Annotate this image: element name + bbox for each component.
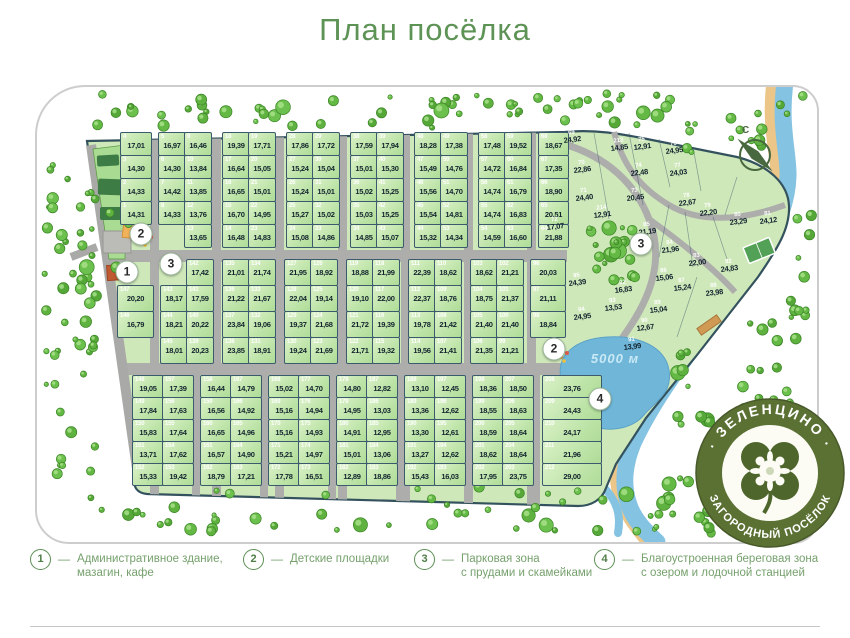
legend-number-1: 1 bbox=[30, 549, 51, 570]
page-title: План посёлка bbox=[0, 12, 850, 48]
legend: 1 — Административное здание,мазагин, каф… bbox=[0, 549, 850, 604]
legend-item-1: 1 — Административное здание,мазагин, каф… bbox=[30, 549, 223, 580]
legend-number-4: 4 bbox=[594, 549, 615, 570]
legend-item-4: 4 — Благоустроенная береговая зонас озер… bbox=[594, 549, 818, 580]
legend-text-2: Детские площадки bbox=[290, 549, 389, 566]
map-marker-4: 4 bbox=[589, 388, 612, 411]
logo-badge: · ЗЕЛЕНЦИНО · ЗАГОРОДНЫЙ ПОСЁЛОК bbox=[693, 396, 847, 550]
legend-item-2: 2 — Детские площадки bbox=[243, 549, 389, 570]
map-marker-1: 1 bbox=[116, 261, 139, 284]
legend-dash: — bbox=[271, 549, 283, 570]
page-footer-line bbox=[30, 626, 820, 627]
map-marker-3: 3 bbox=[160, 253, 183, 276]
map-marker-2: 2 bbox=[130, 223, 153, 246]
settlement-plan-page: План посёлка bbox=[0, 0, 850, 638]
legend-number-2: 2 bbox=[243, 549, 264, 570]
legend-dash: — bbox=[58, 549, 70, 570]
legend-text-3: Парковая зонас прудами и скамейками bbox=[461, 549, 592, 580]
legend-dash: — bbox=[442, 549, 454, 570]
map-marker-3: 3 bbox=[630, 233, 653, 256]
legend-number-3: 3 bbox=[414, 549, 435, 570]
legend-item-3: 3 — Парковая зонас прудами и скамейками bbox=[414, 549, 592, 580]
map-marker-2: 2 bbox=[543, 338, 566, 361]
legend-text-1: Административное здание,мазагин, кафе bbox=[77, 549, 223, 580]
legend-text-4: Благоустроенная береговая зонас озером и… bbox=[641, 549, 818, 580]
legend-dash: — bbox=[622, 549, 634, 570]
